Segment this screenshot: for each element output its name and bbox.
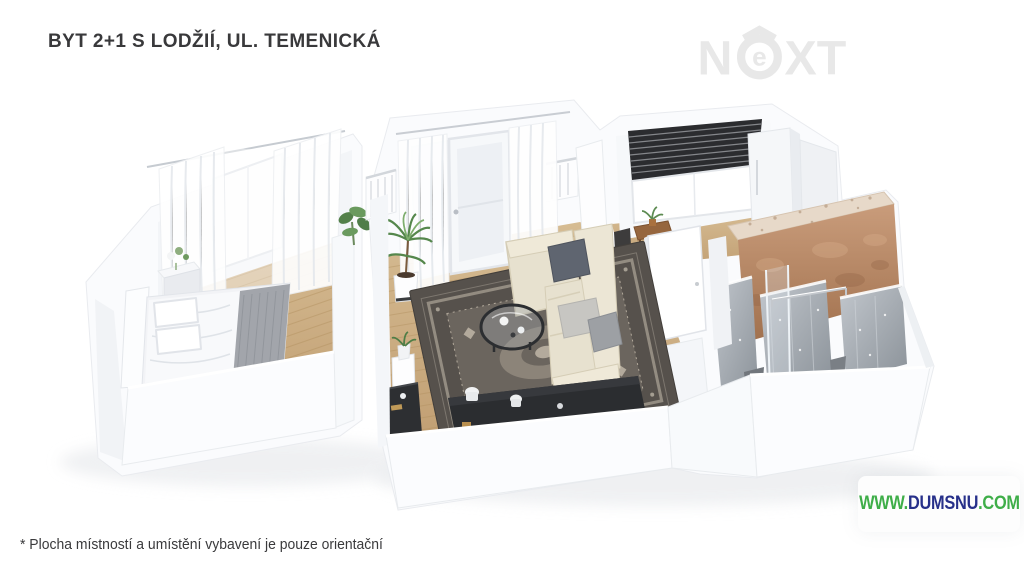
- living-left-wall: [370, 194, 390, 448]
- watermark-domain: DUMSNU: [908, 493, 978, 514]
- table-decor-candle: [500, 317, 509, 326]
- marble-wall-right: [840, 285, 907, 380]
- bed-pillow-bottom: [156, 325, 201, 354]
- watermark-text: WWW.DUMSNU.COM: [859, 493, 1020, 515]
- watermark-www: WWW.: [859, 493, 908, 514]
- glass-shower: [766, 265, 790, 390]
- bed-pillow-top: [154, 298, 198, 327]
- door-handle: [454, 210, 459, 215]
- bedroom: [86, 129, 362, 476]
- watermark-com: .COM: [978, 493, 1020, 514]
- screenshot-canvas: BYT 2+1 S LODŽIÍ, UL. TEMENICKÁ N e XT: [0, 0, 1024, 575]
- right-front-wall: [750, 367, 930, 477]
- hall-door-handle: [695, 282, 699, 286]
- website-watermark: WWW.DUMSNU.COM: [858, 476, 1020, 532]
- main-block: [366, 100, 934, 510]
- footnote: * Plocha místností a umístění vybavení j…: [20, 536, 383, 553]
- pillow-dark: [548, 239, 590, 282]
